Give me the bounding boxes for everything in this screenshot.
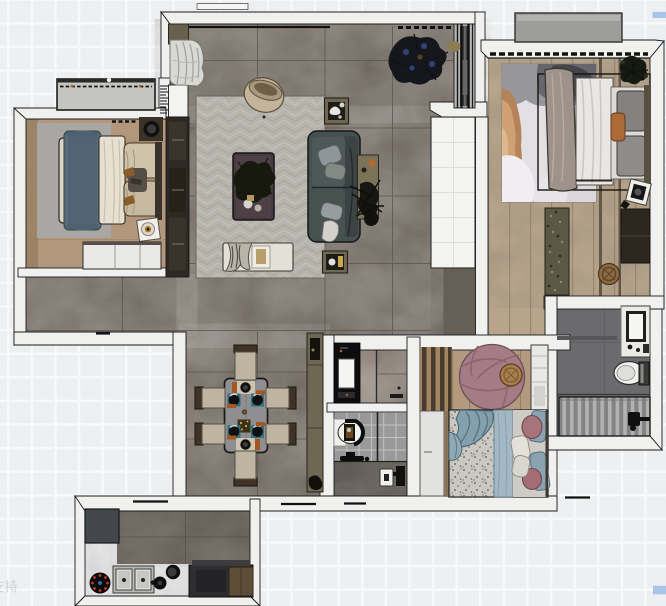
svg-text:支持: 支持 <box>0 580 18 595</box>
